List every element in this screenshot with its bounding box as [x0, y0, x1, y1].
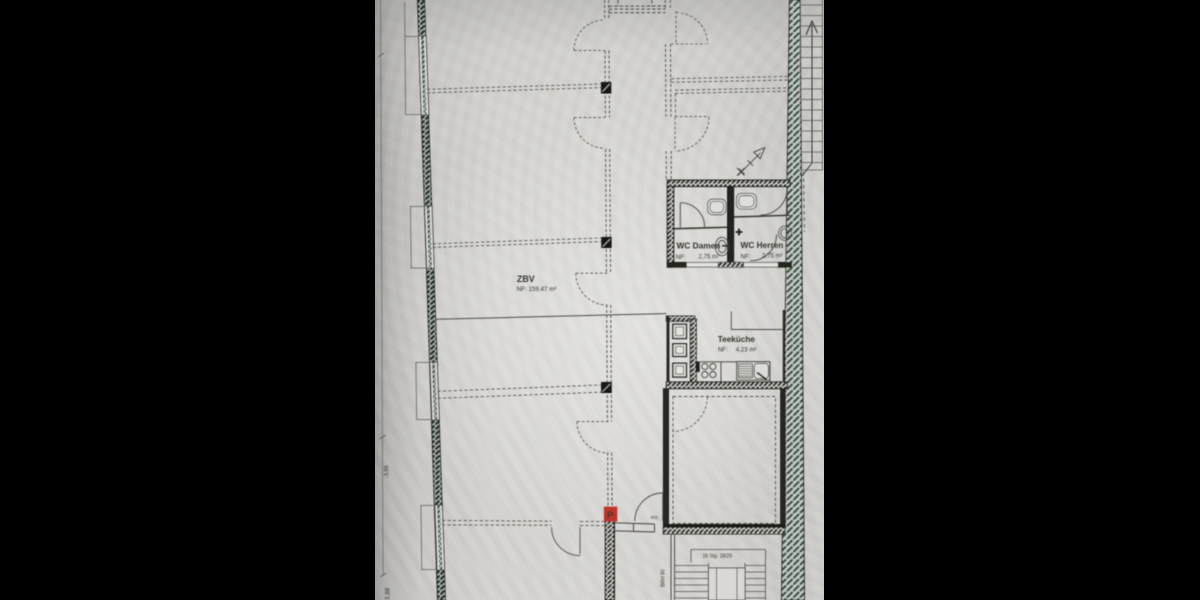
svg-text:NF:: NF: [718, 346, 728, 353]
svg-text:NF:: NF: [676, 254, 686, 261]
svg-text:WC Herren: WC Herren [741, 240, 784, 250]
svg-text:Teeküche: Teeküche [718, 335, 756, 344]
svg-text:WC Damen: WC Damen [677, 241, 721, 251]
svg-text:16 Stg. 18/26: 16 Stg. 18/26 [703, 554, 733, 560]
svg-text:NF:: NF: [741, 254, 751, 261]
svg-text:BRH 90: BRH 90 [661, 569, 667, 587]
svg-text:-3,88: -3,88 [385, 587, 392, 600]
svg-text:ZBV: ZBV [517, 274, 535, 284]
svg-text:4,23 m²: 4,23 m² [736, 346, 757, 353]
svg-text:P: P [607, 511, 614, 522]
svg-text:NF: 159,47 m²: NF: 159,47 m² [517, 286, 557, 293]
svg-text:2,75 m²: 2,75 m² [699, 254, 720, 261]
svg-text:2,75 m²: 2,75 m² [762, 252, 783, 259]
svg-text:RG.: RG. [651, 515, 659, 520]
svg-text:-3,88: -3,88 [384, 465, 390, 478]
